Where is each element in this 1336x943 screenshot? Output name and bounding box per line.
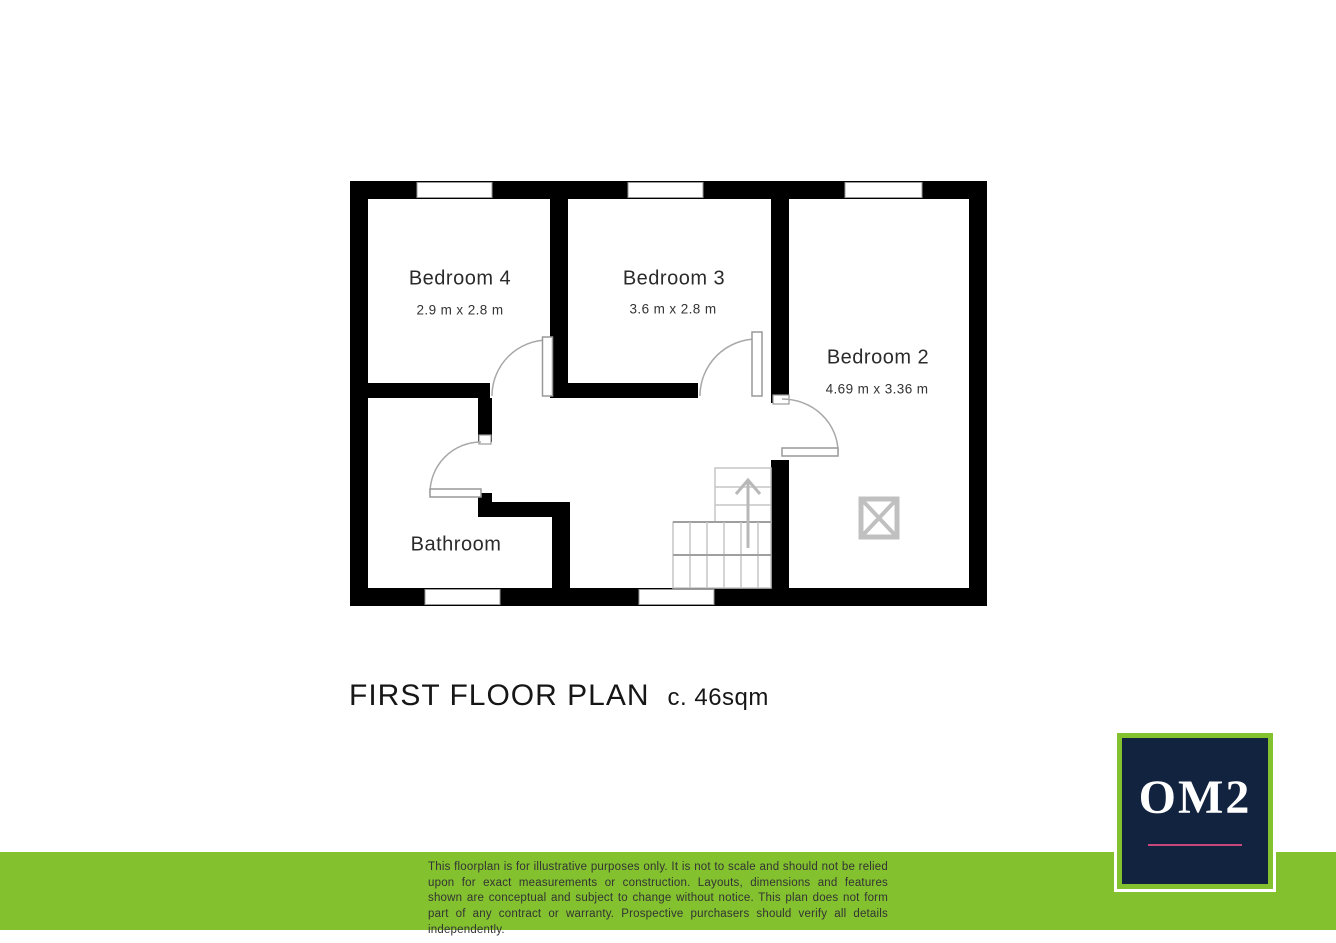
door-bedroom3 [700,332,762,396]
plan-title-row: FIRST FLOOR PLAN c. 46sqm [349,679,769,713]
staircase [673,468,771,588]
door-jambs [479,395,789,444]
room-dimensions-bedroom4: 2.9 m x 2.8 m [417,303,504,318]
agency-logo: OM2 [1114,730,1276,892]
door-bedroom4 [492,337,553,396]
plan-title: FIRST FLOOR PLAN [349,679,650,713]
room-dimensions-bedroom2: 4.69 m x 3.36 m [826,382,929,397]
room-label-bedroom3: Bedroom 3 [623,268,725,291]
window-landing [639,590,714,605]
agency-logo-underline [1148,844,1242,846]
plan-area: c. 46sqm [668,684,769,712]
disclaimer-text: This floorplan is for illustrative purpo… [428,860,888,939]
roof-window-icon [861,499,897,537]
floorplan-page: Bedroom 4 2.9 m x 2.8 m Bedroom 3 3.6 m … [0,0,1336,943]
room-label-bathroom: Bathroom [411,534,502,557]
window-bedroom3 [628,183,703,198]
room-label-bedroom4: Bedroom 4 [409,268,511,291]
room-label-bedroom2: Bedroom 2 [827,347,929,370]
window-bedroom4 [417,183,492,198]
window-bathroom [425,590,500,605]
window-bedroom2 [845,183,922,198]
room-dimensions-bedroom3: 3.6 m x 2.8 m [630,302,717,317]
agency-logo-text: OM2 [1139,774,1252,822]
door-bedroom2 [782,399,838,456]
agency-logo-box: OM2 [1117,733,1273,889]
door-bathroom [430,442,481,497]
